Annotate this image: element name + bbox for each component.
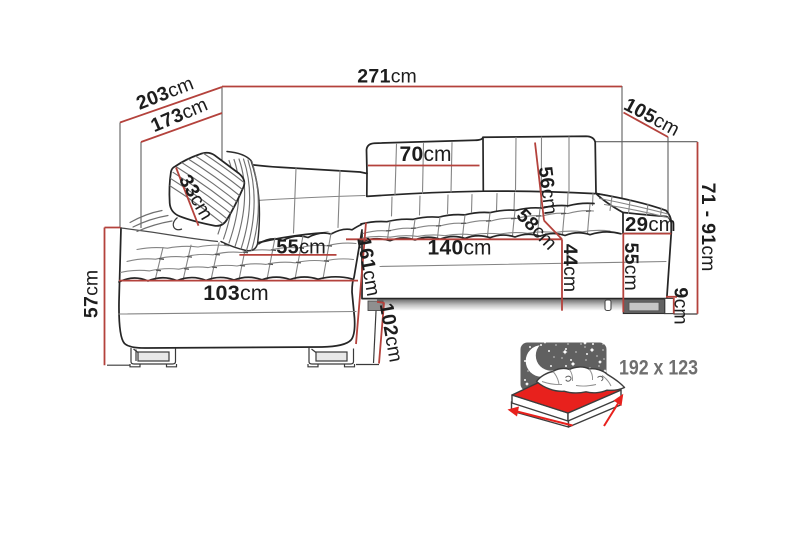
svg-text:29cm: 29cm <box>625 213 676 236</box>
svg-text:70cm: 70cm <box>400 143 452 166</box>
svg-text:44cm: 44cm <box>559 244 581 292</box>
svg-text:55cm: 55cm <box>276 236 326 258</box>
svg-text:140cm: 140cm <box>428 237 492 260</box>
svg-text:271cm: 271cm <box>357 65 416 87</box>
svg-text:71 - 91cm: 71 - 91cm <box>697 183 719 272</box>
svg-text:55cm: 55cm <box>620 242 642 290</box>
svg-text:57cm: 57cm <box>80 270 102 318</box>
svg-text:9cm: 9cm <box>670 287 692 324</box>
svg-text:192 x 123: 192 x 123 <box>619 356 698 380</box>
svg-text:103cm: 103cm <box>203 281 268 305</box>
